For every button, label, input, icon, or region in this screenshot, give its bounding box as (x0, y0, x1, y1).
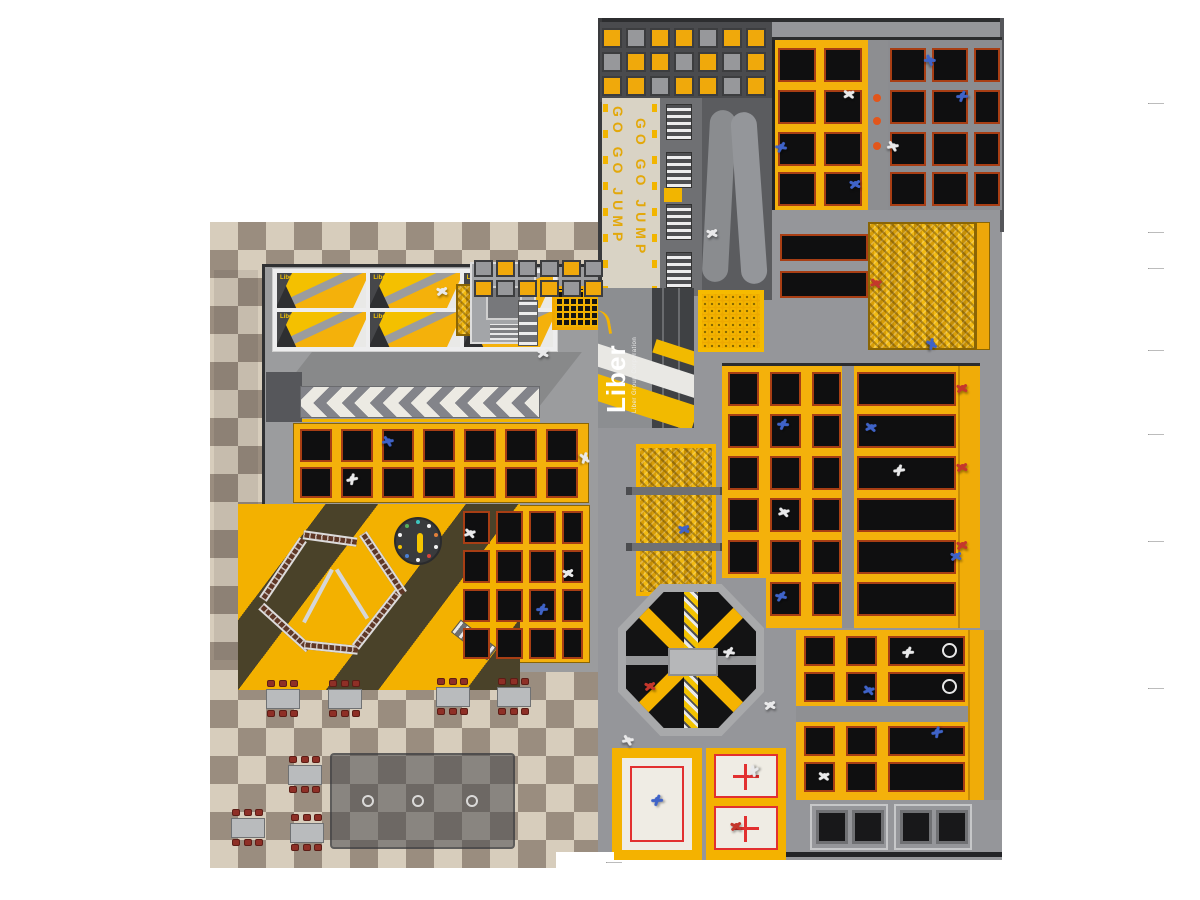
dimension-tick (1148, 268, 1164, 269)
ninja-course-bay: Liber (277, 273, 366, 308)
mat-cross (733, 775, 759, 778)
top-panel-wall (600, 22, 772, 102)
massage-chair (816, 810, 848, 844)
floor-mat (330, 753, 515, 849)
banner-dashes (603, 100, 608, 294)
go-jump-text: GO GO JUMP (610, 106, 626, 246)
wipeout-octagon (618, 584, 764, 736)
liber-brand-label: Liber (373, 314, 388, 320)
airbag-zone-a (612, 748, 702, 860)
massage-chair (900, 810, 932, 844)
runway-start-pad (266, 372, 302, 422)
honeycomb-foam-pit (698, 290, 764, 352)
side-walkway (984, 630, 1002, 800)
liber-logo-text: Liber (601, 344, 631, 413)
liber-brand-label: Liber (373, 275, 388, 281)
dimension-tick (1148, 688, 1164, 689)
swimmer-swoosh-icon (598, 308, 612, 336)
dimension-tick (1148, 350, 1164, 351)
slide-lane (730, 111, 768, 284)
liber-brand-label: Liber (280, 314, 295, 320)
center-foam-pit (636, 444, 716, 596)
liber-logo-subtitle: Liber Group Corporation (632, 303, 638, 413)
stair-landing (664, 188, 682, 202)
ninja-course-bay: Liber (370, 312, 459, 347)
octagon-spokes (626, 592, 756, 728)
ropes-course-zone (238, 504, 520, 690)
battle-beam (626, 487, 726, 495)
battle-beam (626, 543, 726, 551)
clock-key (417, 533, 423, 553)
dimension-tick (1148, 103, 1164, 104)
chevron-bottom (301, 403, 540, 418)
airbag-zone-b (706, 748, 786, 860)
trampoline-park-floor-plan: Liber Liber Liber Liber Liber Liber GO (0, 0, 1200, 900)
chevron-top (301, 387, 540, 403)
tower-stairs (490, 324, 518, 340)
dimension-tick (1148, 434, 1164, 435)
liber-logo: Liber Liber Group Corporation (603, 303, 649, 413)
massage-chair (852, 810, 884, 844)
top-court-yellow (772, 40, 868, 210)
checker-floor-top-strip (210, 222, 598, 268)
left-court-a (293, 423, 589, 503)
ninja-course-bay: Liber (277, 312, 366, 347)
climbing-clock (394, 517, 442, 565)
foam-pit-large (868, 222, 976, 350)
airbag-mat (714, 806, 778, 850)
liber-brand-label: Liber (280, 275, 295, 281)
climb-wall (958, 366, 980, 628)
slide-tower (702, 98, 772, 300)
mat-cross (733, 827, 759, 830)
tower-platform (486, 286, 522, 320)
stairs (666, 204, 692, 240)
liber-logo-panel: Liber Liber Group Corporation (598, 288, 694, 428)
center-hub (668, 648, 718, 676)
runway-edge-line (302, 419, 540, 422)
court-walkway (868, 40, 888, 210)
stairs (666, 252, 692, 288)
airbag-lines (630, 766, 684, 842)
court-walkway (842, 366, 854, 628)
entrance-gap (556, 852, 614, 870)
stairs (666, 152, 692, 188)
dimension-tick (1148, 541, 1164, 542)
go-jump-banner: GO GO JUMP GO GO JUMP (602, 98, 660, 296)
banner-dashes (652, 100, 657, 294)
chevron-runway (300, 386, 540, 418)
ninja-course-bay: Liber (370, 273, 459, 308)
dimension-tick (1148, 232, 1164, 233)
top-court-gray (888, 40, 1002, 210)
wall-edge-bottom (782, 852, 1002, 857)
dunk-wall (968, 630, 984, 800)
stairs (666, 104, 692, 140)
foam-pit-wall (976, 222, 990, 350)
equipment-shelf (518, 300, 538, 346)
go-jump-text: GO GO JUMP (633, 118, 649, 258)
wall-edge (262, 264, 598, 267)
massage-chair (936, 810, 968, 844)
airbag-mat (714, 754, 778, 798)
